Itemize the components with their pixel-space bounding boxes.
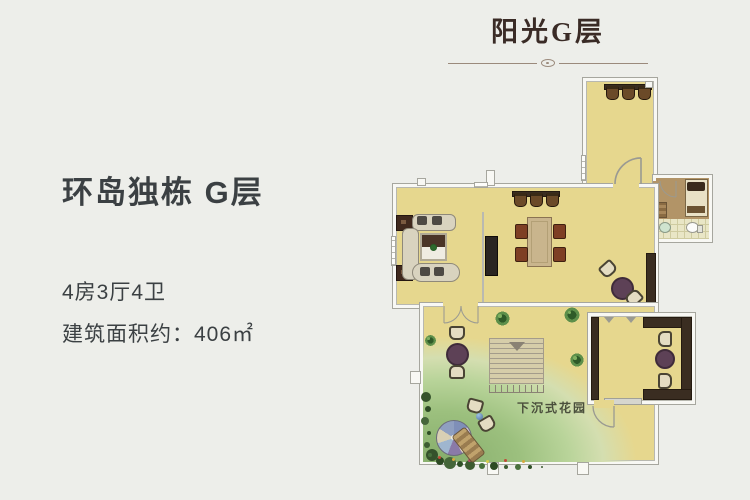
dining-chair bbox=[515, 247, 528, 262]
stair-direction-icon bbox=[509, 342, 525, 351]
plan-title: 阳光G层 bbox=[448, 10, 648, 49]
tv-feature-wall bbox=[482, 212, 484, 302]
divider-line-right bbox=[559, 63, 648, 64]
table-plant-icon bbox=[430, 244, 437, 251]
pavilion-wall bbox=[643, 389, 692, 400]
cushion bbox=[420, 267, 430, 276]
plant-icon bbox=[569, 352, 585, 368]
bush-column bbox=[421, 392, 431, 402]
bush-row bbox=[426, 449, 438, 461]
pavilion-chair bbox=[658, 373, 672, 389]
cushion bbox=[417, 216, 427, 225]
toilet-icon bbox=[686, 222, 699, 233]
tv-cabinet bbox=[485, 236, 498, 276]
window bbox=[474, 182, 488, 188]
wall-bump bbox=[410, 371, 421, 384]
bar-chair bbox=[546, 193, 559, 207]
bedroom-door-arc bbox=[660, 181, 676, 197]
window-tick bbox=[626, 317, 636, 323]
pavilion-table bbox=[655, 349, 675, 369]
stair-railing bbox=[489, 385, 544, 393]
garden-chair bbox=[449, 365, 465, 379]
closet bbox=[657, 202, 667, 218]
spec-rooms: 4房3厅4卫 bbox=[62, 276, 166, 306]
title-divider bbox=[448, 58, 648, 68]
flower-dots bbox=[438, 456, 441, 459]
garden-chair bbox=[449, 326, 465, 340]
real-estate-floorplan-page: 阳光G层 环岛独栋 G层 4房3厅4卫 建筑面积约：406㎡ bbox=[0, 0, 750, 500]
bar-chair bbox=[530, 193, 543, 207]
dining-table bbox=[527, 217, 552, 267]
dining-chair bbox=[553, 224, 566, 239]
cushion bbox=[432, 216, 442, 225]
pillow bbox=[687, 182, 705, 191]
bar-chair bbox=[638, 86, 651, 100]
garden-table bbox=[446, 343, 469, 366]
wall-fixture bbox=[645, 81, 653, 88]
wall-bump bbox=[417, 178, 426, 186]
garden-side-door-arc bbox=[593, 406, 614, 427]
plant-icon bbox=[494, 310, 511, 327]
dining-chair bbox=[553, 247, 566, 262]
plan-title-block: 阳光G层 bbox=[448, 10, 648, 68]
bar-chair bbox=[606, 86, 619, 100]
cushion bbox=[434, 267, 444, 276]
bar-chair bbox=[622, 86, 635, 100]
staircase bbox=[489, 338, 544, 384]
plant-icon bbox=[424, 334, 437, 347]
spec-area: 建筑面积约：406㎡ bbox=[62, 318, 254, 348]
window bbox=[391, 236, 396, 266]
garden-door-left bbox=[444, 306, 461, 323]
door-opening bbox=[613, 183, 639, 190]
pavilion-wall bbox=[681, 317, 692, 400]
dining-chair bbox=[515, 224, 528, 239]
divider-ornament-icon bbox=[541, 59, 555, 67]
pavilion-wall bbox=[591, 317, 599, 400]
bar-chair bbox=[514, 193, 527, 207]
hall-door-arc bbox=[615, 158, 641, 184]
plant-icon bbox=[563, 306, 581, 324]
divider-line-left bbox=[448, 63, 537, 64]
window-tick bbox=[604, 317, 614, 323]
window bbox=[581, 155, 586, 181]
pavilion-chair bbox=[658, 331, 672, 347]
ball-icon bbox=[476, 413, 483, 420]
coffee-table bbox=[420, 233, 447, 261]
bed bbox=[685, 179, 708, 217]
garden-label: 下沉式花园 bbox=[517, 399, 587, 416]
blanket bbox=[687, 206, 705, 213]
listing-heading: 环岛独栋 G层 bbox=[62, 167, 264, 212]
wall-bump bbox=[487, 462, 499, 475]
wall-bump bbox=[577, 462, 589, 475]
sink-icon bbox=[659, 222, 671, 233]
garden-door-right bbox=[461, 306, 478, 323]
